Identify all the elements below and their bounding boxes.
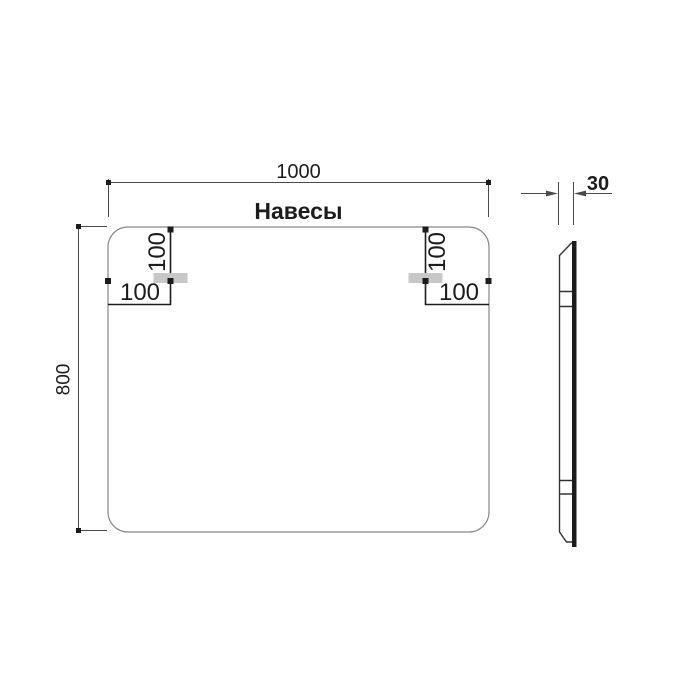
side-view-top-chamfer [560, 243, 573, 256]
thickness-dimension-label: 30 [576, 174, 620, 194]
left-hanger-edge-offset-label: 100 [100, 281, 180, 305]
side-view-top-bracket [559, 292, 572, 307]
drawing-linework [0, 0, 690, 690]
side-view-glass-edge [572, 241, 577, 547]
right-hanger-edge-offset-label: 100 [419, 281, 499, 305]
width-dimension-label: 1000 [108, 162, 489, 182]
side-view-bottom-chamfer [560, 532, 573, 542]
technical-drawing-canvas: 1000 Навесы 800 100 100 100 100 30 [0, 0, 690, 690]
height-dimension-tick-top [76, 224, 81, 229]
thickness-arrowhead-left [546, 191, 558, 197]
side-view-bottom-bracket [559, 481, 572, 495]
height-dimension-tick-bottom [76, 528, 81, 533]
height-dimension-label: 800 [55, 340, 74, 420]
